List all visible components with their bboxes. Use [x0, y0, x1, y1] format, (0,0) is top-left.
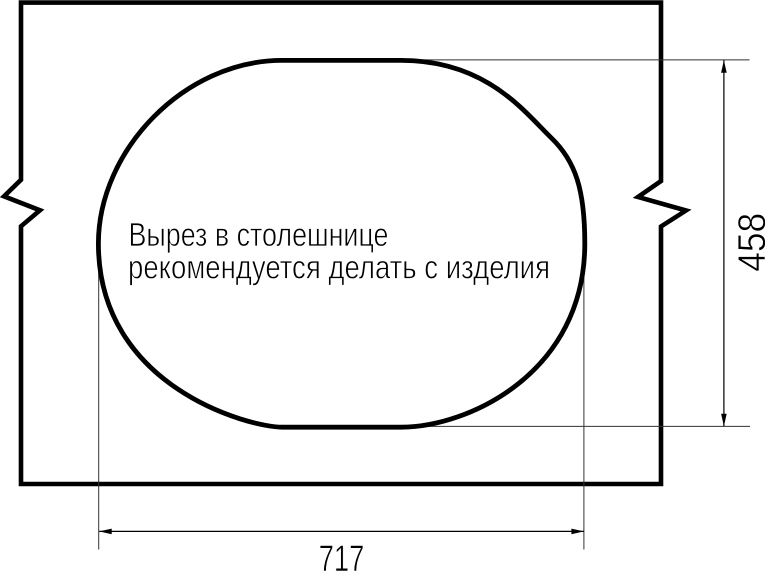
svg-text:Вырез в столешнице: Вырез в столешнице: [129, 216, 389, 253]
svg-text:рекомендуется делать с изделия: рекомендуется делать с изделия: [128, 249, 550, 286]
svg-text:717: 717: [319, 538, 365, 572]
svg-text:458: 458: [731, 213, 765, 272]
